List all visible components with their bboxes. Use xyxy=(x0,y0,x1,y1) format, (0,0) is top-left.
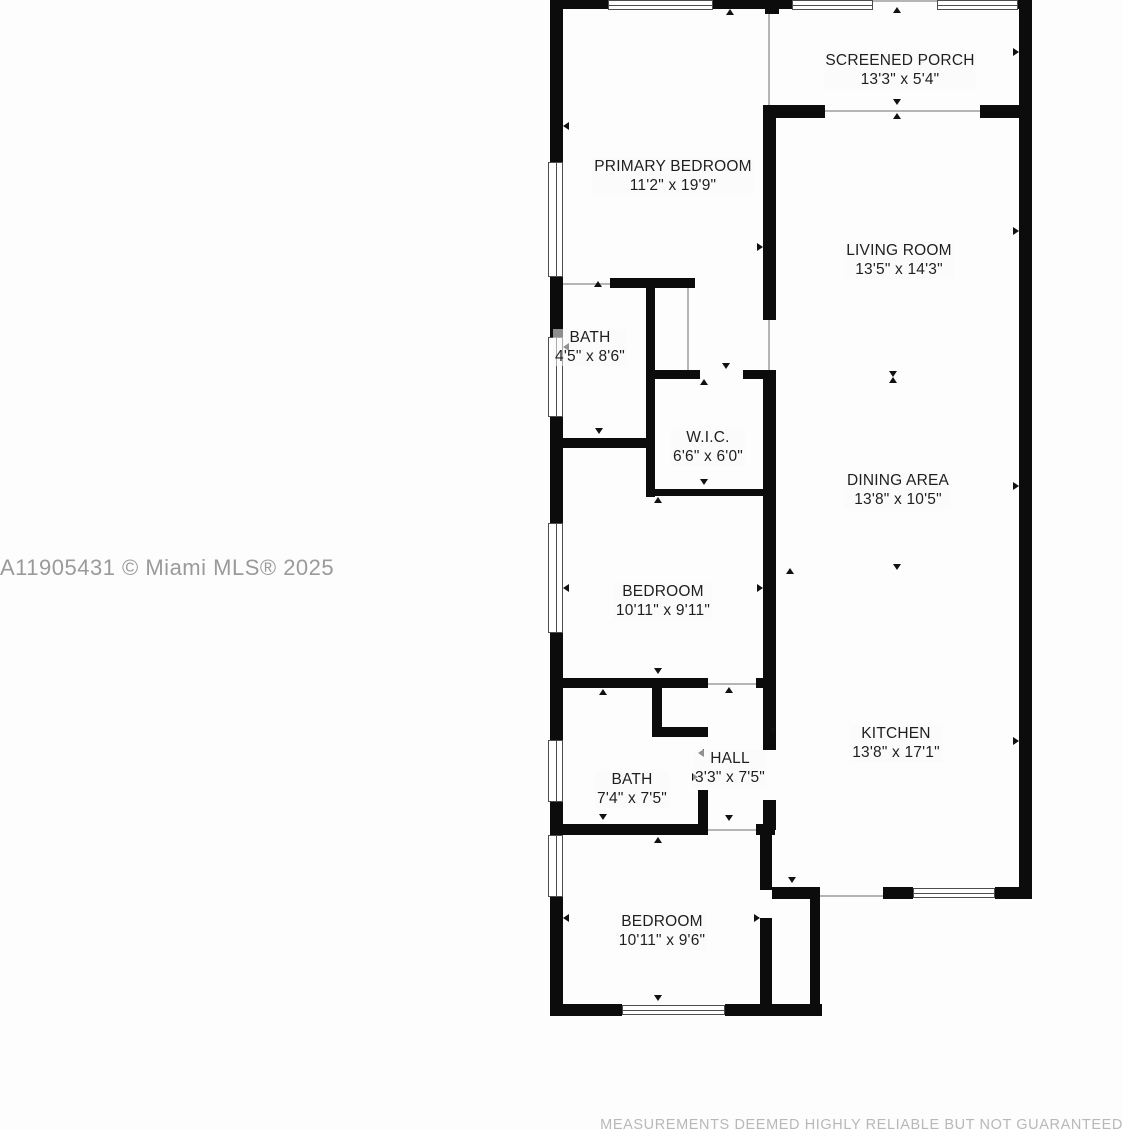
window xyxy=(548,162,563,277)
wall xyxy=(760,830,772,890)
room-dimensions: 4'5" x 8'6" xyxy=(555,348,625,367)
dimension-marker xyxy=(563,914,569,922)
room-dimensions: 7'4" x 7'5" xyxy=(597,790,667,809)
room-label-bedroom-2: BEDROOM 10'11" x 9'11" xyxy=(614,583,712,620)
wall xyxy=(646,288,655,497)
door-threshold xyxy=(708,683,756,685)
door-threshold xyxy=(820,895,883,897)
room-dimensions: 13'8" x 10'5" xyxy=(847,491,949,510)
dimension-marker xyxy=(599,689,607,695)
room-dimensions: 11'2" x 19'9" xyxy=(594,177,751,196)
mls-watermark: A11905431 © Miami MLS® 2025 xyxy=(0,555,334,581)
door-marker xyxy=(700,379,708,385)
room-dimensions: 10'11" x 9'6" xyxy=(619,932,705,951)
screen-line xyxy=(768,8,770,105)
wall xyxy=(810,888,820,1016)
wall xyxy=(550,0,608,9)
room-label-dining-area: DINING AREA 13'8" x 10'5" xyxy=(845,472,951,509)
room-label-bath-2: BATH 7'4" x 7'5" xyxy=(595,771,669,808)
dimension-marker xyxy=(599,814,607,820)
dimension-marker xyxy=(1013,227,1019,235)
dimension-marker xyxy=(1013,737,1019,745)
wall xyxy=(756,678,776,688)
door-marker xyxy=(893,99,901,105)
door-marker xyxy=(769,726,775,734)
wall xyxy=(550,897,563,1016)
door-marker xyxy=(725,815,733,821)
window xyxy=(913,888,995,898)
wall xyxy=(646,489,775,496)
room-name: BEDROOM xyxy=(619,913,705,932)
wall xyxy=(550,678,708,688)
dimension-marker xyxy=(654,995,662,1001)
door-marker xyxy=(788,877,796,883)
dimension-marker xyxy=(1013,482,1019,490)
room-dimensions: 13'3" x 5'4" xyxy=(825,71,974,90)
dimension-marker xyxy=(700,479,708,485)
dimension-marker xyxy=(757,243,763,251)
dimension-marker xyxy=(563,584,569,592)
room-dimensions: 10'11" x 9'11" xyxy=(616,602,710,621)
wall xyxy=(743,370,776,379)
room-label-hall: HALL 3'3" x 7'5" xyxy=(693,750,767,787)
window xyxy=(548,523,563,633)
wall xyxy=(713,0,765,9)
dimension-marker xyxy=(654,668,662,674)
screen-line xyxy=(873,0,937,2)
dimension-marker xyxy=(563,122,569,130)
room-label-kitchen: KITCHEN 13'8" x 17'1" xyxy=(850,725,942,762)
wall xyxy=(725,1004,822,1016)
dimension-marker xyxy=(893,564,901,570)
wall xyxy=(652,727,708,737)
room-label-screened-porch: SCREENED PORCH 13'3" x 5'4" xyxy=(823,52,976,89)
room-name: KITCHEN xyxy=(852,725,940,744)
window xyxy=(792,0,873,10)
room-dimensions: 13'5" x 14'3" xyxy=(846,261,952,280)
dimension-marker xyxy=(889,377,897,383)
wall xyxy=(550,277,563,337)
room-name: BEDROOM xyxy=(616,583,710,602)
dimension-marker xyxy=(654,837,662,843)
wall xyxy=(763,370,776,750)
dimension-marker xyxy=(726,9,734,15)
room-label-wic: W.I.C. 6'6" x 6'0" xyxy=(671,429,745,466)
door-marker xyxy=(725,687,733,693)
room-name: BATH xyxy=(555,329,625,348)
dimension-marker xyxy=(754,914,760,922)
wall xyxy=(610,278,695,288)
dimension-marker xyxy=(757,584,763,592)
room-name: W.I.C. xyxy=(673,429,743,448)
door-threshold xyxy=(708,829,756,831)
floorplan-canvas: SCREENED PORCH 13'3" x 5'4" PRIMARY BEDR… xyxy=(0,0,1123,1130)
window xyxy=(937,0,1018,10)
dimension-marker xyxy=(893,7,901,13)
wall xyxy=(995,887,1032,899)
window xyxy=(548,835,563,897)
room-dimensions: 13'8" x 17'1" xyxy=(852,744,940,763)
door-threshold xyxy=(563,283,610,285)
wall xyxy=(756,824,775,835)
room-name: PRIMARY BEDROOM xyxy=(594,158,751,177)
room-name: BATH xyxy=(597,771,667,790)
room-dimensions: 3'3" x 7'5" xyxy=(695,769,765,788)
wall xyxy=(550,438,646,448)
door-leaf xyxy=(687,288,689,370)
wall xyxy=(646,370,700,379)
wall xyxy=(550,1004,622,1016)
wall xyxy=(980,105,1032,118)
wall xyxy=(883,887,913,899)
wall xyxy=(760,918,772,1004)
room-name: DINING AREA xyxy=(847,472,949,491)
room-name: SCREENED PORCH xyxy=(825,52,974,71)
room-label-bedroom-3: BEDROOM 10'11" x 9'6" xyxy=(617,913,707,950)
room-dimensions: 6'6" x 6'0" xyxy=(673,448,743,467)
wall xyxy=(550,0,563,162)
wall xyxy=(550,824,708,835)
measurements-disclaimer: MEASUREMENTS DEEMED HIGHLY RELIABLE BUT … xyxy=(600,1117,1123,1130)
room-name: LIVING ROOM xyxy=(846,242,952,261)
room-name: HALL xyxy=(695,750,765,769)
door-threshold xyxy=(768,320,770,370)
room-label-primary-bedroom: PRIMARY BEDROOM 11'2" x 19'9" xyxy=(592,158,753,195)
wall xyxy=(550,417,563,523)
door-marker xyxy=(722,363,730,369)
window xyxy=(608,0,713,10)
door-threshold xyxy=(825,110,980,112)
door-marker xyxy=(594,281,602,287)
dimension-marker xyxy=(786,568,794,574)
wall xyxy=(1019,0,1032,899)
door-marker xyxy=(893,113,901,119)
window xyxy=(622,1005,725,1015)
wall xyxy=(763,105,776,320)
wall xyxy=(765,8,779,14)
window xyxy=(548,740,563,802)
room-label-bath-1: BATH 4'5" x 8'6" xyxy=(553,329,627,366)
dimension-marker xyxy=(595,428,603,434)
dimension-marker xyxy=(1013,48,1019,56)
dimension-marker xyxy=(654,497,662,503)
room-label-living-room: LIVING ROOM 13'5" x 14'3" xyxy=(844,242,954,279)
